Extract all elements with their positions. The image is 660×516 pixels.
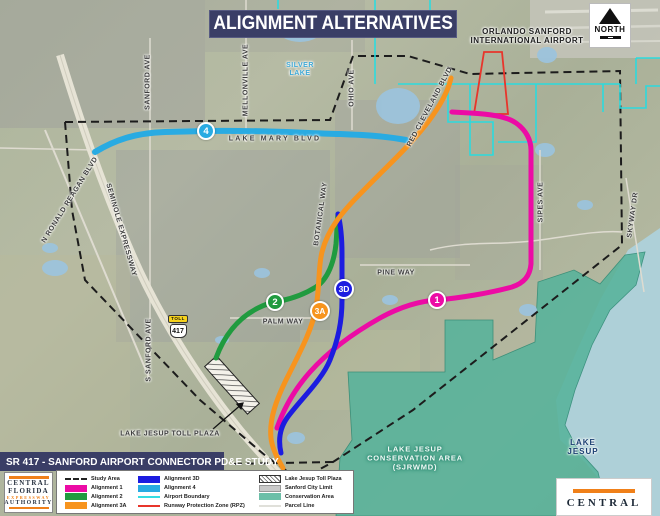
alignment-alternatives-map: ALIGNMENT ALTERNATIVES SR 417 - SANFORD … [0, 0, 660, 516]
title-text: ALIGNMENT ALTERNATIVES [213, 13, 453, 35]
toll-plaza-hatch [205, 356, 260, 414]
legend-item-alignment-1: Alignment 1 [65, 484, 128, 493]
north-arrow-icon [599, 8, 621, 24]
legend-item-alignment-4: Alignment 4 [138, 484, 249, 493]
toll-plaza-swatch [259, 475, 281, 483]
rpz-swatch [138, 505, 160, 507]
legend-col-2: Alignment 3D Alignment 4 Airport Boundar… [138, 475, 249, 510]
road-label-sipes-ave: SIPES AVE [538, 182, 545, 223]
cfx-bottom-bar [9, 507, 49, 510]
road-label-mellonville-ave: MELLONVILLE AVE [243, 44, 250, 116]
cfx-authority: AUTHORITY [4, 500, 52, 507]
legend-item-parcel-line: Parcel Line [259, 501, 345, 510]
study-banner: SR 417 - SANFORD AIRPORT CONNECTOR PD&E … [0, 452, 224, 471]
legend-col-3: Lake Jesup Toll Plaza Sanford City Limit… [259, 475, 345, 510]
legend: Study Area Alignment 1 Alignment 2 Align… [56, 470, 354, 514]
road-label-ohio-ave: OHIO AVE [349, 69, 356, 106]
badge-alignment-3a: 3A [310, 301, 330, 321]
cfx-logo: CENTRAL FLORIDA EXPRESSWAY AUTHORITY [4, 472, 53, 513]
north-arrow-box: NORTH [589, 3, 631, 48]
central-logo-text: CENTRAL [567, 497, 642, 509]
title-banner: ALIGNMENT ALTERNATIVES [209, 10, 457, 38]
sr417-toll-shield: TOLL 417 [166, 315, 190, 338]
route-number: 417 [170, 324, 187, 338]
road-label-s-sanford-ave: S SANFORD AVE [146, 318, 153, 381]
alignment-3d-swatch [138, 476, 160, 483]
lake-jesup-label: LAKE JESUP [567, 438, 598, 456]
alignment-4-swatch [138, 485, 160, 492]
alignment-3a-swatch [65, 502, 87, 509]
conservation-swatch [259, 493, 281, 500]
legend-item-alignment-3d: Alignment 3D [138, 475, 249, 484]
legend-item-city-limit: Sanford City Limit [259, 484, 345, 493]
toll-tab: TOLL [168, 315, 188, 323]
legend-item-conservation: Conservation Area [259, 493, 345, 502]
legend-item-airport-boundary: Airport Boundary [138, 493, 249, 502]
airport-name-label: ORLANDO SANFORD INTERNATIONAL AIRPORT [470, 27, 583, 45]
legend-item-alignment-3a: Alignment 3A [65, 501, 128, 510]
legend-col-1: Study Area Alignment 1 Alignment 2 Align… [65, 475, 128, 510]
conservation-area-label: LAKE JESUP CONSERVATION AREA (SJRWMD) [367, 445, 463, 472]
silver-lake-label: SILVER LAKE [286, 62, 314, 78]
parcel-line-swatch [259, 505, 281, 507]
cfx-central: CENTRAL [7, 479, 50, 487]
legend-item-toll-plaza: Lake Jesup Toll Plaza [259, 475, 345, 484]
central-logo: CENTRAL [556, 478, 652, 516]
road-label-sanford-ave: SANFORD AVE [145, 54, 152, 110]
scale-bar [600, 36, 621, 39]
study-banner-text: SR 417 - SANFORD AIRPORT CONNECTOR PD&E … [6, 456, 279, 468]
cfx-florida: FLORIDA [8, 487, 49, 495]
alignment-1-swatch [65, 485, 87, 492]
legend-item-alignment-2: Alignment 2 [65, 493, 128, 502]
airport-boundary-swatch [138, 496, 160, 498]
badge-alignment-2: 2 [266, 293, 284, 311]
legend-item-study-area: Study Area [65, 475, 128, 484]
alignment-2-swatch [65, 493, 87, 500]
map-canvas [0, 0, 660, 516]
road-label-palm-way: PALM WAY [263, 319, 304, 326]
road-label-lake-mary: LAKE MARY BLVD [229, 136, 322, 143]
central-logo-bar [573, 489, 635, 493]
road-label-pine-way: PINE WAY [377, 270, 415, 277]
legend-item-rpz: Runway Protection Zone (RPZ) [138, 501, 249, 510]
study-area-swatch [65, 478, 87, 480]
north-label: NORTH [595, 25, 626, 34]
city-limit-swatch [259, 485, 281, 492]
badge-alignment-1: 1 [428, 291, 446, 309]
badge-alignment-4: 4 [197, 122, 215, 140]
toll-plaza-label: LAKE JESUP TOLL PLAZA [120, 431, 220, 438]
runway-protection-zone [474, 52, 508, 114]
badge-alignment-3d: 3D [334, 279, 354, 299]
